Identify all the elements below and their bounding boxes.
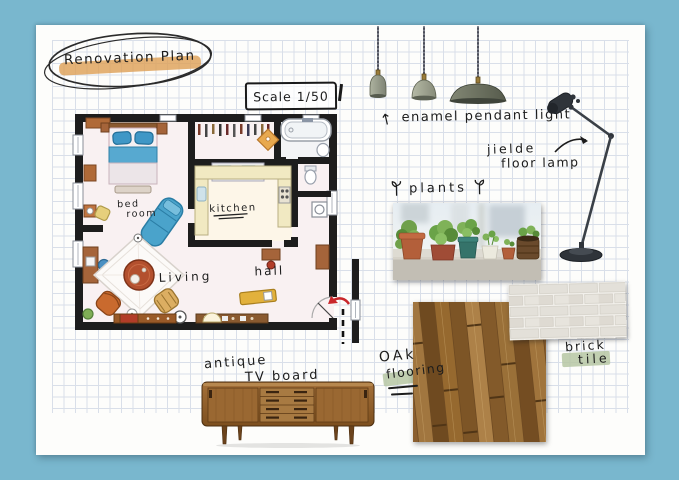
- floor-lamp-drawing: [543, 88, 621, 266]
- renovation-moodboard: Renovation Plan Scale 1/50: [0, 0, 679, 480]
- tv-console: [114, 314, 176, 323]
- hall-cabinet: [316, 245, 329, 269]
- right-door: [316, 388, 368, 422]
- entry-arrow: [328, 296, 349, 304]
- washbasin: [317, 144, 329, 157]
- left-door: [208, 388, 258, 422]
- side-shelf: [84, 165, 96, 181]
- legs: [222, 426, 354, 444]
- curved-arrow-icon: [552, 132, 594, 154]
- plants-caption: plants: [391, 179, 485, 197]
- pendant-lights-drawing: [362, 26, 512, 106]
- lamp-head: [544, 91, 575, 117]
- bed: [109, 123, 157, 193]
- svg-text:room: room: [126, 208, 157, 220]
- nightstand-left: [101, 123, 109, 132]
- pendant-shade-bell: [370, 75, 386, 97]
- toilet: [305, 166, 316, 184]
- plants-photo: [393, 203, 541, 280]
- floor-plan-drawing: bed room kitchen Living hall: [62, 107, 372, 345]
- living-label: Living: [158, 269, 212, 285]
- sprout-icon: [474, 179, 485, 195]
- washing-machine: [312, 202, 327, 217]
- hall-label: hall: [254, 263, 284, 278]
- bedroom-table: [84, 205, 96, 217]
- plant-pot: [83, 309, 93, 319]
- pendant-shade-cone: [412, 80, 436, 98]
- floorlamp-caption-line2: floor lamp: [501, 154, 580, 170]
- up-arrow-icon: ↑: [378, 109, 394, 129]
- tv-board-image: [198, 376, 378, 448]
- brick-tile-photo: [508, 281, 626, 340]
- sprout-icon: [391, 181, 402, 197]
- drawers: [260, 388, 314, 422]
- round-table: [124, 260, 154, 290]
- grid-paper-sheet: Renovation Plan Scale 1/50: [36, 25, 645, 455]
- brick-caption-line2: tile: [578, 350, 610, 367]
- nightstand-right: [157, 123, 167, 134]
- bathtub: [281, 118, 331, 141]
- kitchen-label: kitchen: [209, 202, 257, 215]
- barrel-plant: [517, 226, 540, 260]
